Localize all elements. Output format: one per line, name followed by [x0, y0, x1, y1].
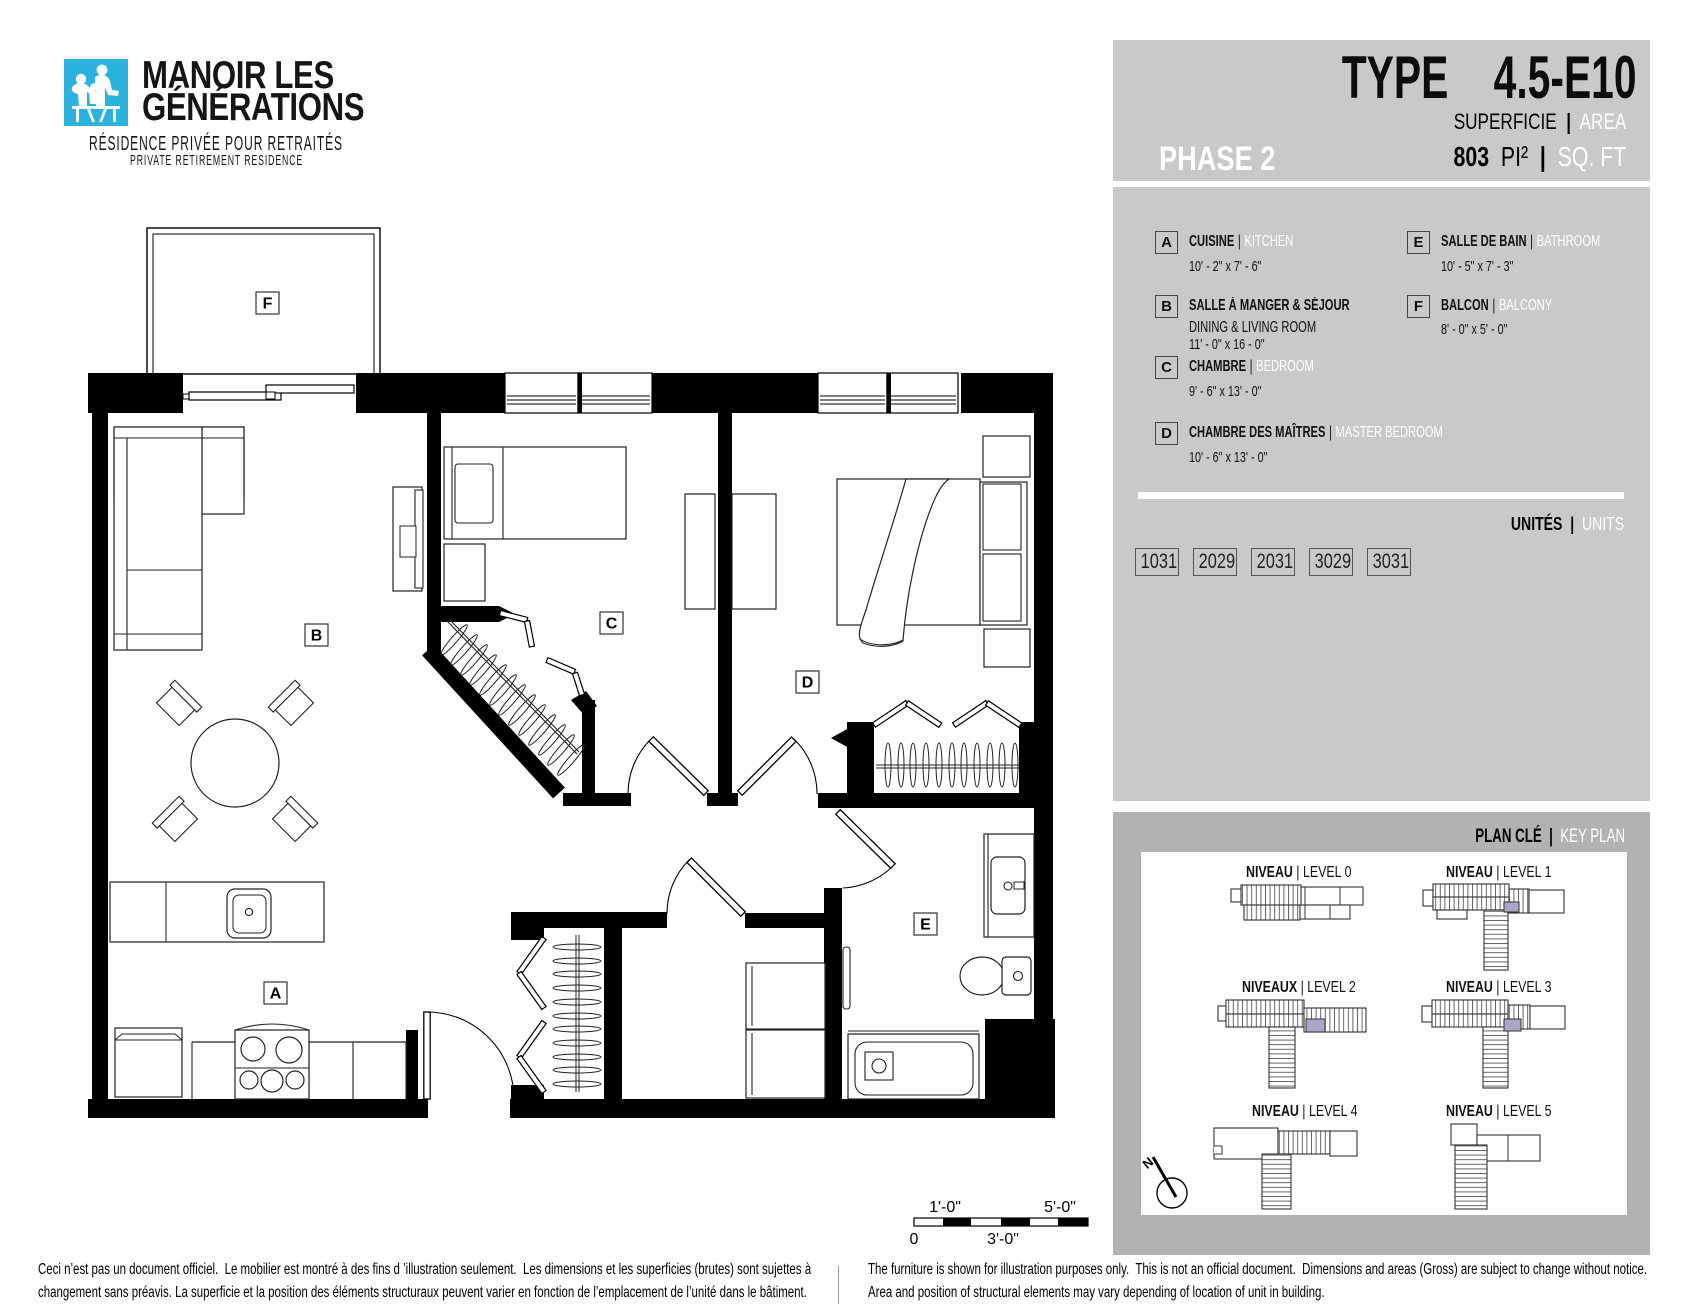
svg-text:E: E [920, 917, 931, 934]
svg-text:5'-0": 5'-0" [1044, 1199, 1076, 1216]
svg-text:3'-0": 3'-0" [987, 1231, 1019, 1248]
svg-text:C: C [606, 616, 618, 633]
svg-text:0: 0 [910, 1231, 919, 1248]
svg-text:B: B [311, 628, 323, 645]
svg-text:1'-0": 1'-0" [929, 1199, 961, 1216]
svg-text:D: D [802, 675, 814, 692]
svg-text:A: A [270, 986, 282, 1003]
svg-text:F: F [263, 296, 273, 313]
